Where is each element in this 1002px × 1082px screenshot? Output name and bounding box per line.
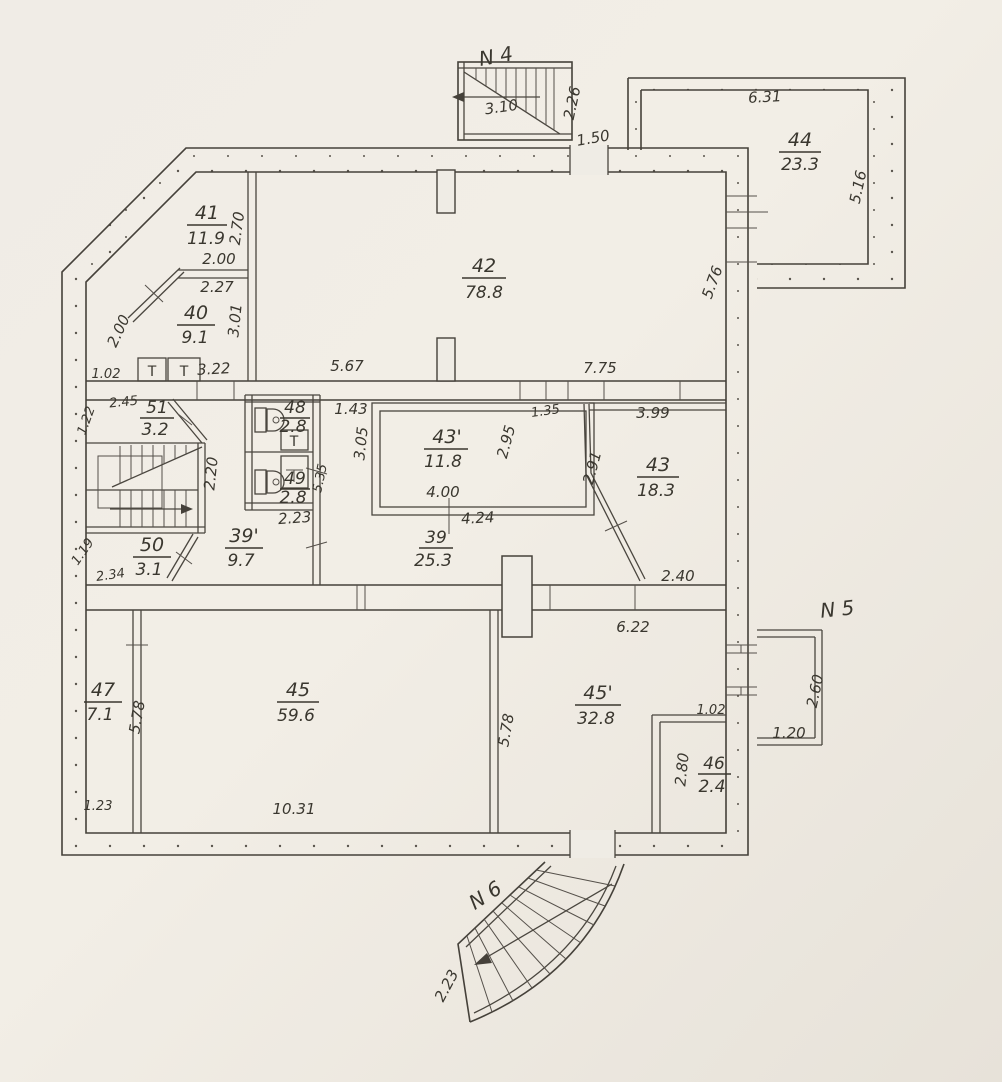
room-number: 48: [284, 398, 306, 418]
floor-plan-drawing: N 4 N 5 N 6 44 23.3 41 11.9 40 9.1 42 78…: [0, 0, 1002, 1082]
room-area: 9.7: [227, 551, 254, 571]
dim-corr1-mid: 5.67: [330, 357, 364, 375]
dim-left-51: 2.45: [108, 394, 138, 412]
dim-wc-top: 3.22: [197, 359, 231, 379]
dim-r40-top: 2.27: [200, 278, 234, 296]
room-number: 41: [195, 202, 219, 224]
dim-r41-bottom: 2.00: [202, 250, 235, 268]
room-number: 47: [91, 679, 115, 701]
dim-stair-width: 2.20: [200, 456, 221, 491]
dim-annex-top: 6.31: [748, 87, 782, 107]
top-door-opening: [570, 145, 608, 175]
room-number: 46: [703, 754, 725, 774]
dim-r46-top: 1.02: [697, 703, 726, 718]
cistern-t-symbol: T: [289, 434, 299, 450]
room-area: 3.1: [135, 560, 162, 580]
room-49-label: 49 2.8: [279, 469, 310, 508]
room-area: 3.2: [141, 420, 168, 440]
room-area: 25.3: [414, 551, 452, 571]
dim-r46-left: 2.80: [671, 752, 692, 787]
room-number: 44: [788, 129, 812, 151]
room-area: 2.8: [279, 488, 306, 508]
room-area: 11.8: [424, 452, 462, 472]
dim-r40-height: 3.01: [224, 303, 245, 338]
dim-r43-top: 3.99: [636, 404, 669, 422]
room-number: 49: [284, 469, 306, 489]
dim-r43p-left: 3.05: [350, 426, 371, 461]
room-number: 51: [146, 398, 168, 418]
room-number: 43': [432, 426, 461, 448]
dim-r45-bottom: 10.31: [273, 800, 316, 818]
dim-wc-bottom: 2.23: [277, 508, 312, 528]
room-number: 40: [184, 302, 208, 324]
room-number: 45: [286, 679, 310, 701]
room-number: 39': [229, 525, 258, 547]
cistern-t-symbol: T: [147, 364, 157, 380]
room-area: 18.3: [637, 481, 675, 501]
room-number: 45': [583, 682, 612, 704]
room-number: 42: [472, 255, 496, 277]
dim-porch-bottom: 1.20: [772, 724, 805, 742]
floor-plan-page: N 4 N 5 N 6 44 23.3 41 11.9 40 9.1 42 78…: [0, 0, 1002, 1082]
dim-r39-width: 4.24: [461, 508, 495, 528]
room-area: 2.4: [698, 777, 725, 797]
dim-corr2-right: 2.40: [661, 567, 694, 585]
stair-n5-label: N 5: [819, 595, 855, 622]
room-number: 39: [425, 528, 447, 548]
room-area: 32.8: [577, 709, 615, 729]
dim-corr1-right: 7.75: [583, 359, 616, 377]
room-number: 43: [646, 454, 670, 476]
room-area: 78.8: [465, 283, 503, 303]
dim-corr2-below: 6.22: [616, 618, 649, 636]
dim-gap-143: 1.43: [334, 400, 367, 418]
cross-column: [502, 556, 532, 637]
room-48-label: 48 2.8: [279, 398, 310, 437]
room-area: 11.9: [187, 229, 225, 249]
cistern-t-symbol: T: [179, 364, 189, 380]
dim-r47-bottom: 1.23: [84, 799, 113, 814]
room-area: 7.1: [86, 705, 113, 725]
room-number: 50: [140, 534, 164, 556]
dim-r43p-width: 4.00: [426, 483, 459, 501]
room-area: 9.1: [181, 328, 208, 348]
room-area: 59.6: [277, 706, 315, 726]
room-area: 23.3: [781, 155, 819, 175]
bottom-door-opening: [570, 830, 615, 858]
dim-left-strip: 1.02: [92, 367, 121, 382]
